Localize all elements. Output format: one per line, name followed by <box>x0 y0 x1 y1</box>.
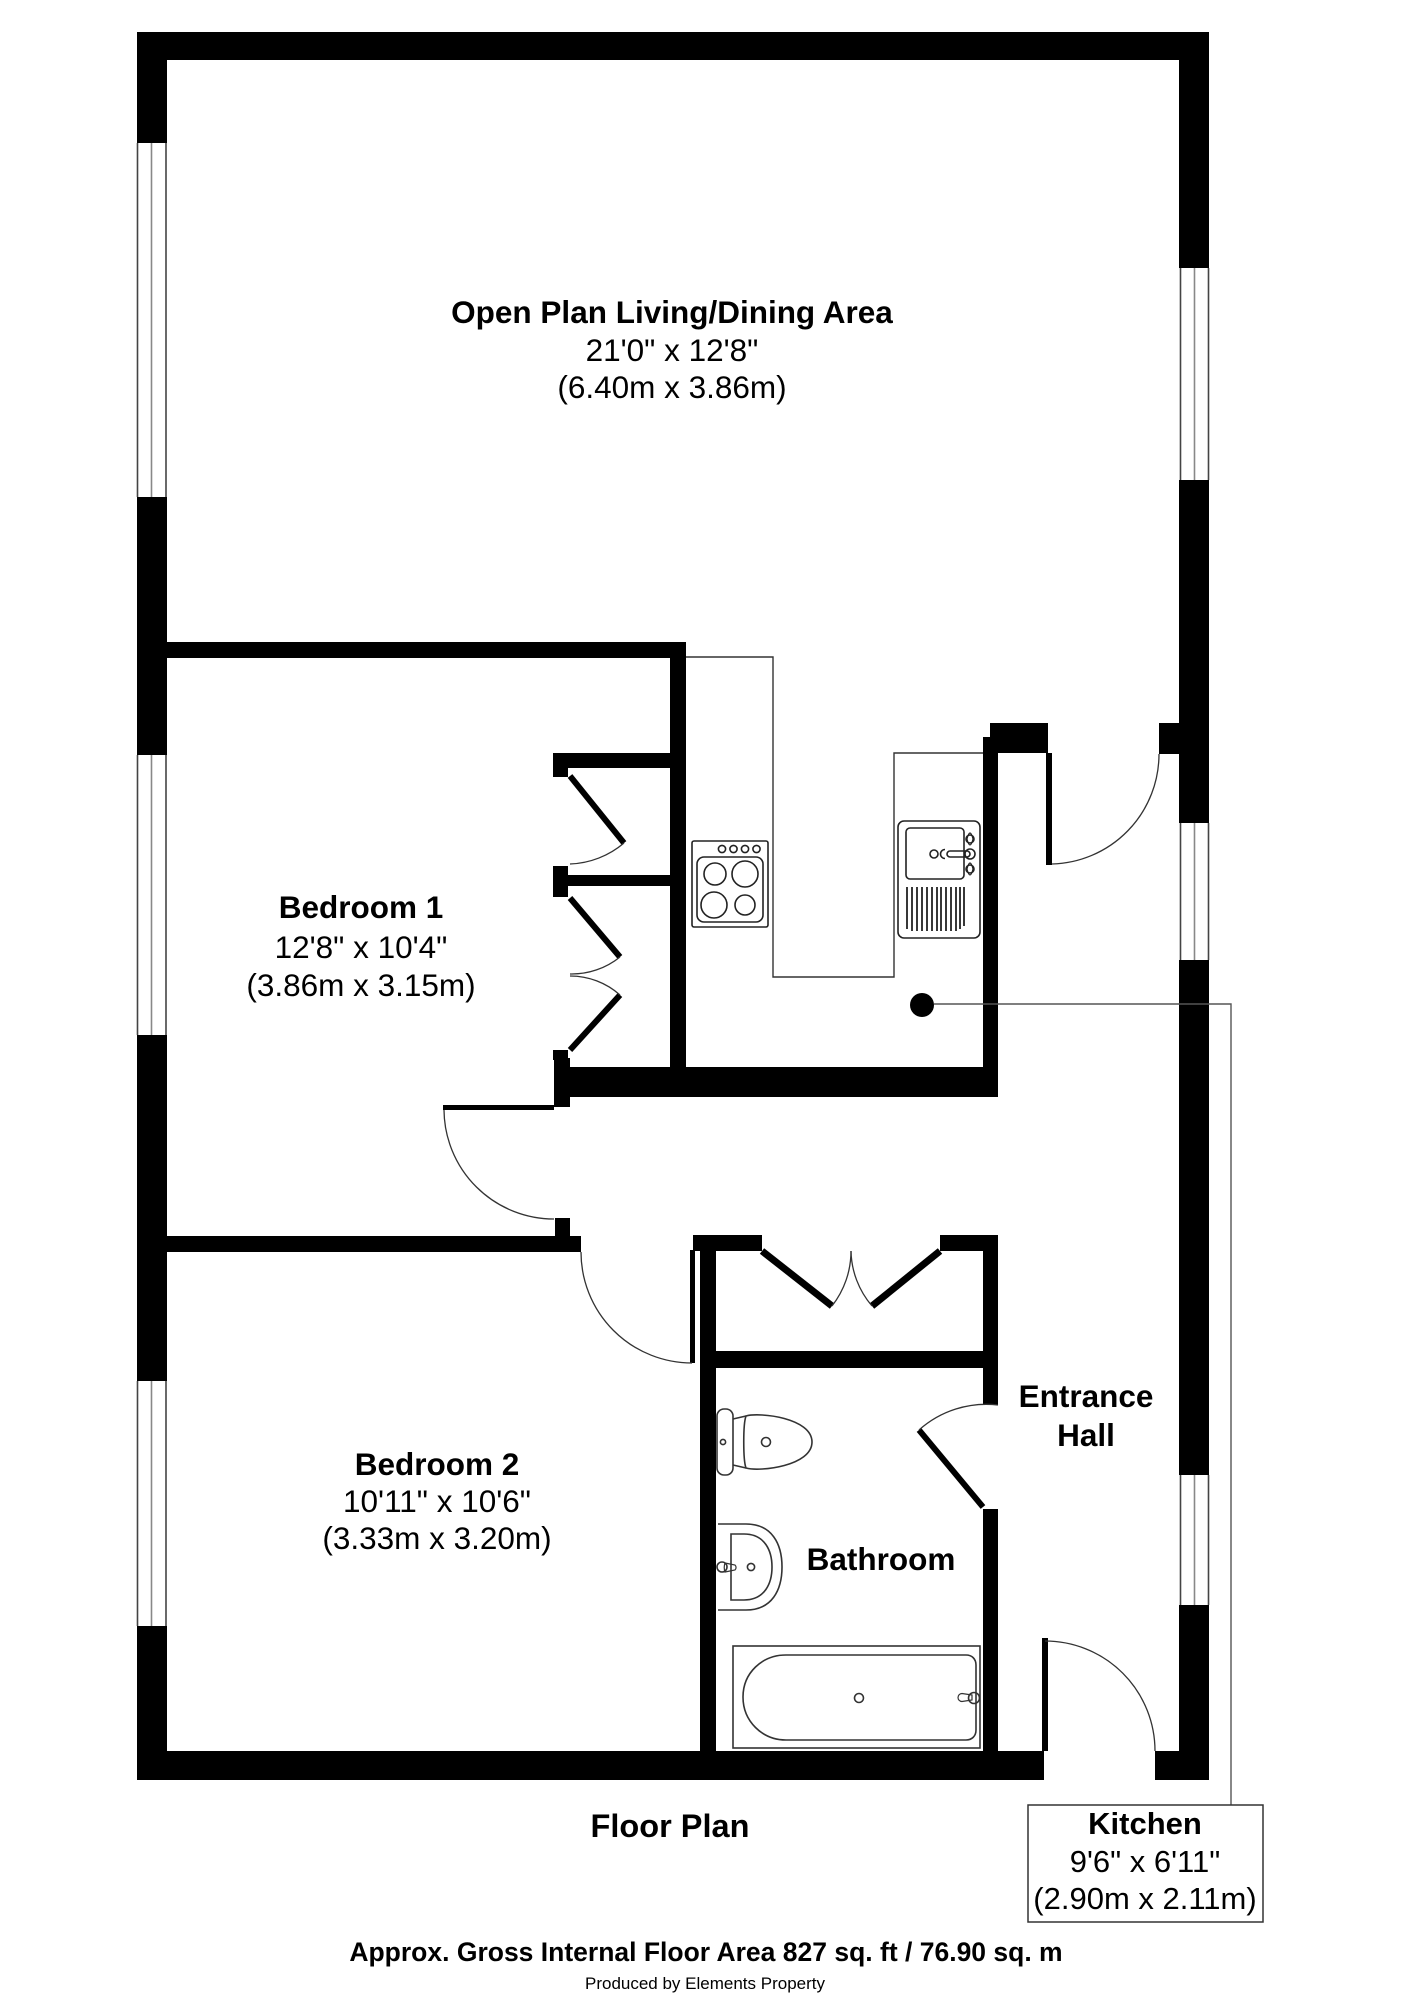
svg-text:Hall: Hall <box>1057 1417 1115 1453</box>
svg-text:9'6" x 6'11": 9'6" x 6'11" <box>1070 1844 1220 1879</box>
svg-text:Open Plan Living/Dining Area: Open Plan Living/Dining Area <box>451 294 893 330</box>
svg-text:(3.33m x 3.20m): (3.33m x 3.20m) <box>322 1520 551 1556</box>
svg-text:12'8" x 10'4": 12'8" x 10'4" <box>275 929 448 965</box>
svg-text:Floor Plan: Floor Plan <box>591 1808 750 1844</box>
svg-text:Entrance: Entrance <box>1019 1378 1154 1414</box>
svg-text:Produced by Elements Property: Produced by Elements Property <box>585 1974 826 1993</box>
svg-text:(3.86m x 3.15m): (3.86m x 3.15m) <box>246 967 475 1003</box>
svg-text:Kitchen: Kitchen <box>1088 1806 1202 1841</box>
svg-text:Bedroom 1: Bedroom 1 <box>279 889 444 925</box>
svg-text:21'0" x 12'8": 21'0" x 12'8" <box>586 332 759 368</box>
svg-text:(6.40m x 3.86m): (6.40m x 3.86m) <box>557 369 786 405</box>
svg-text:Approx. Gross Internal Floor A: Approx. Gross Internal Floor Area 827 sq… <box>349 1937 1062 1967</box>
svg-text:10'11" x 10'6": 10'11" x 10'6" <box>343 1483 531 1519</box>
svg-text:(2.90m x 2.11m): (2.90m x 2.11m) <box>1033 1881 1256 1916</box>
svg-text:Bedroom 2: Bedroom 2 <box>355 1446 520 1482</box>
svg-text:Bathroom: Bathroom <box>807 1541 956 1577</box>
